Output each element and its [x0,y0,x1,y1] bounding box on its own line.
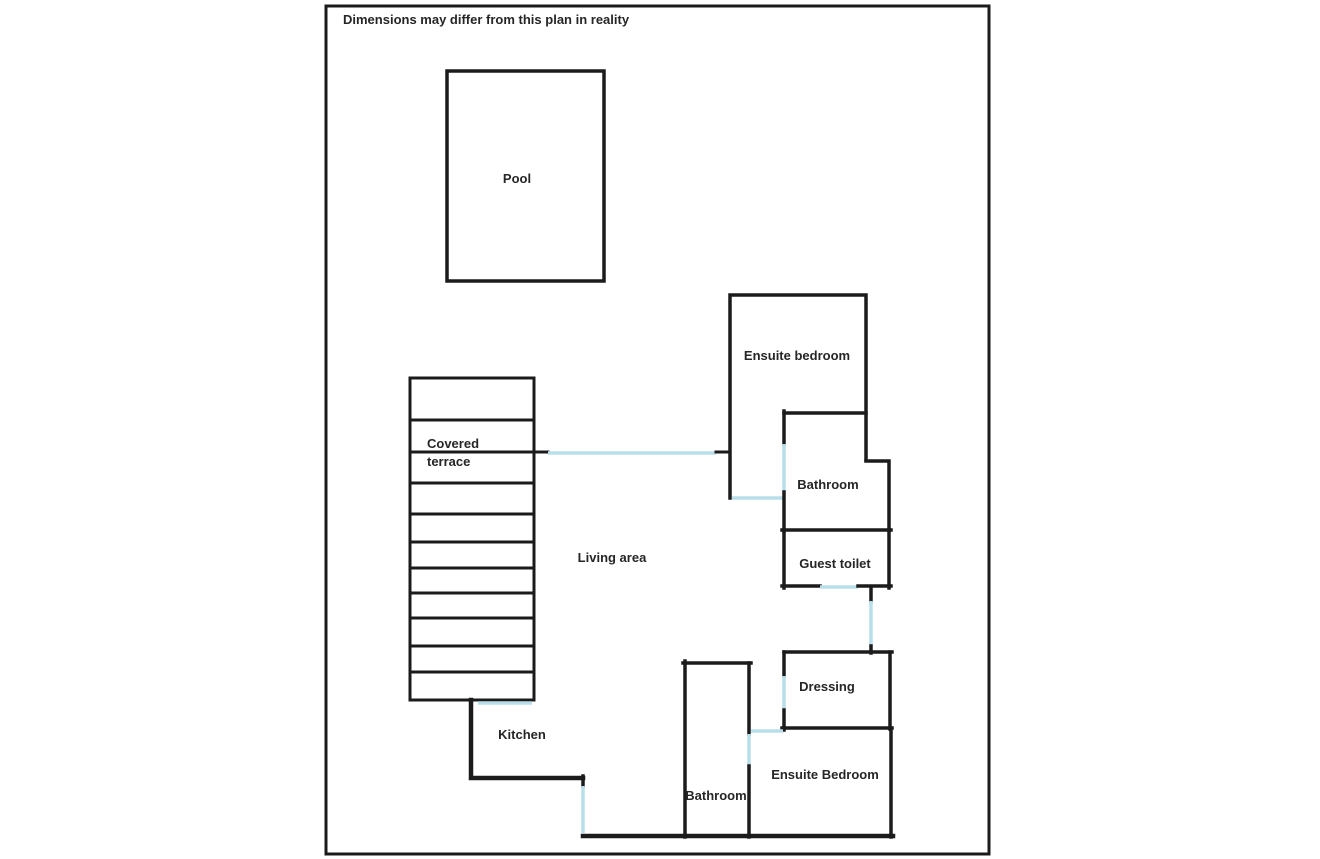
bedroom-walls [730,295,866,498]
terrace-label-line1: Covered [427,436,479,451]
bathroom-bottom: Bathroom [683,661,751,837]
bathroom-top-label: Bathroom [797,477,858,492]
disclaimer-text: Dimensions may differ from this plan in … [343,12,630,27]
ensuite-bedroom-bottom: Ensuite Bedroom [751,728,891,837]
floor-plan: Dimensions may differ from this plan in … [0,0,1320,859]
kitchen-label: Kitchen [498,727,546,742]
covered-terrace: Covered terrace [410,378,534,703]
ensuite-bedroom-top: Ensuite bedroom [730,295,866,498]
floor-plan-canvas: Dimensions may differ from this plan in … [0,0,1320,859]
terrace-label-line2: terrace [427,454,470,469]
ensuite-bedroom-top-label: Ensuite bedroom [744,348,850,363]
terrace-outline [410,378,534,700]
guest-toilet-label: Guest toilet [799,556,871,571]
kitchen: Kitchen [471,700,583,833]
living-area-label: Living area [578,550,647,565]
pool: Pool [447,71,604,281]
ensuite-bedroom-bottom-label: Ensuite Bedroom [771,767,879,782]
living-area: Living area [534,452,730,565]
dressing-label: Dressing [799,679,855,694]
bathroom-top: Bathroom [782,411,891,531]
bathroom-east-wall-jog [866,461,889,530]
pool-label: Pool [503,171,531,186]
guest-toilet: Guest toilet [782,530,891,588]
bathroom-bottom-label: Bathroom [685,788,746,803]
dressing: Dressing [782,652,892,730]
